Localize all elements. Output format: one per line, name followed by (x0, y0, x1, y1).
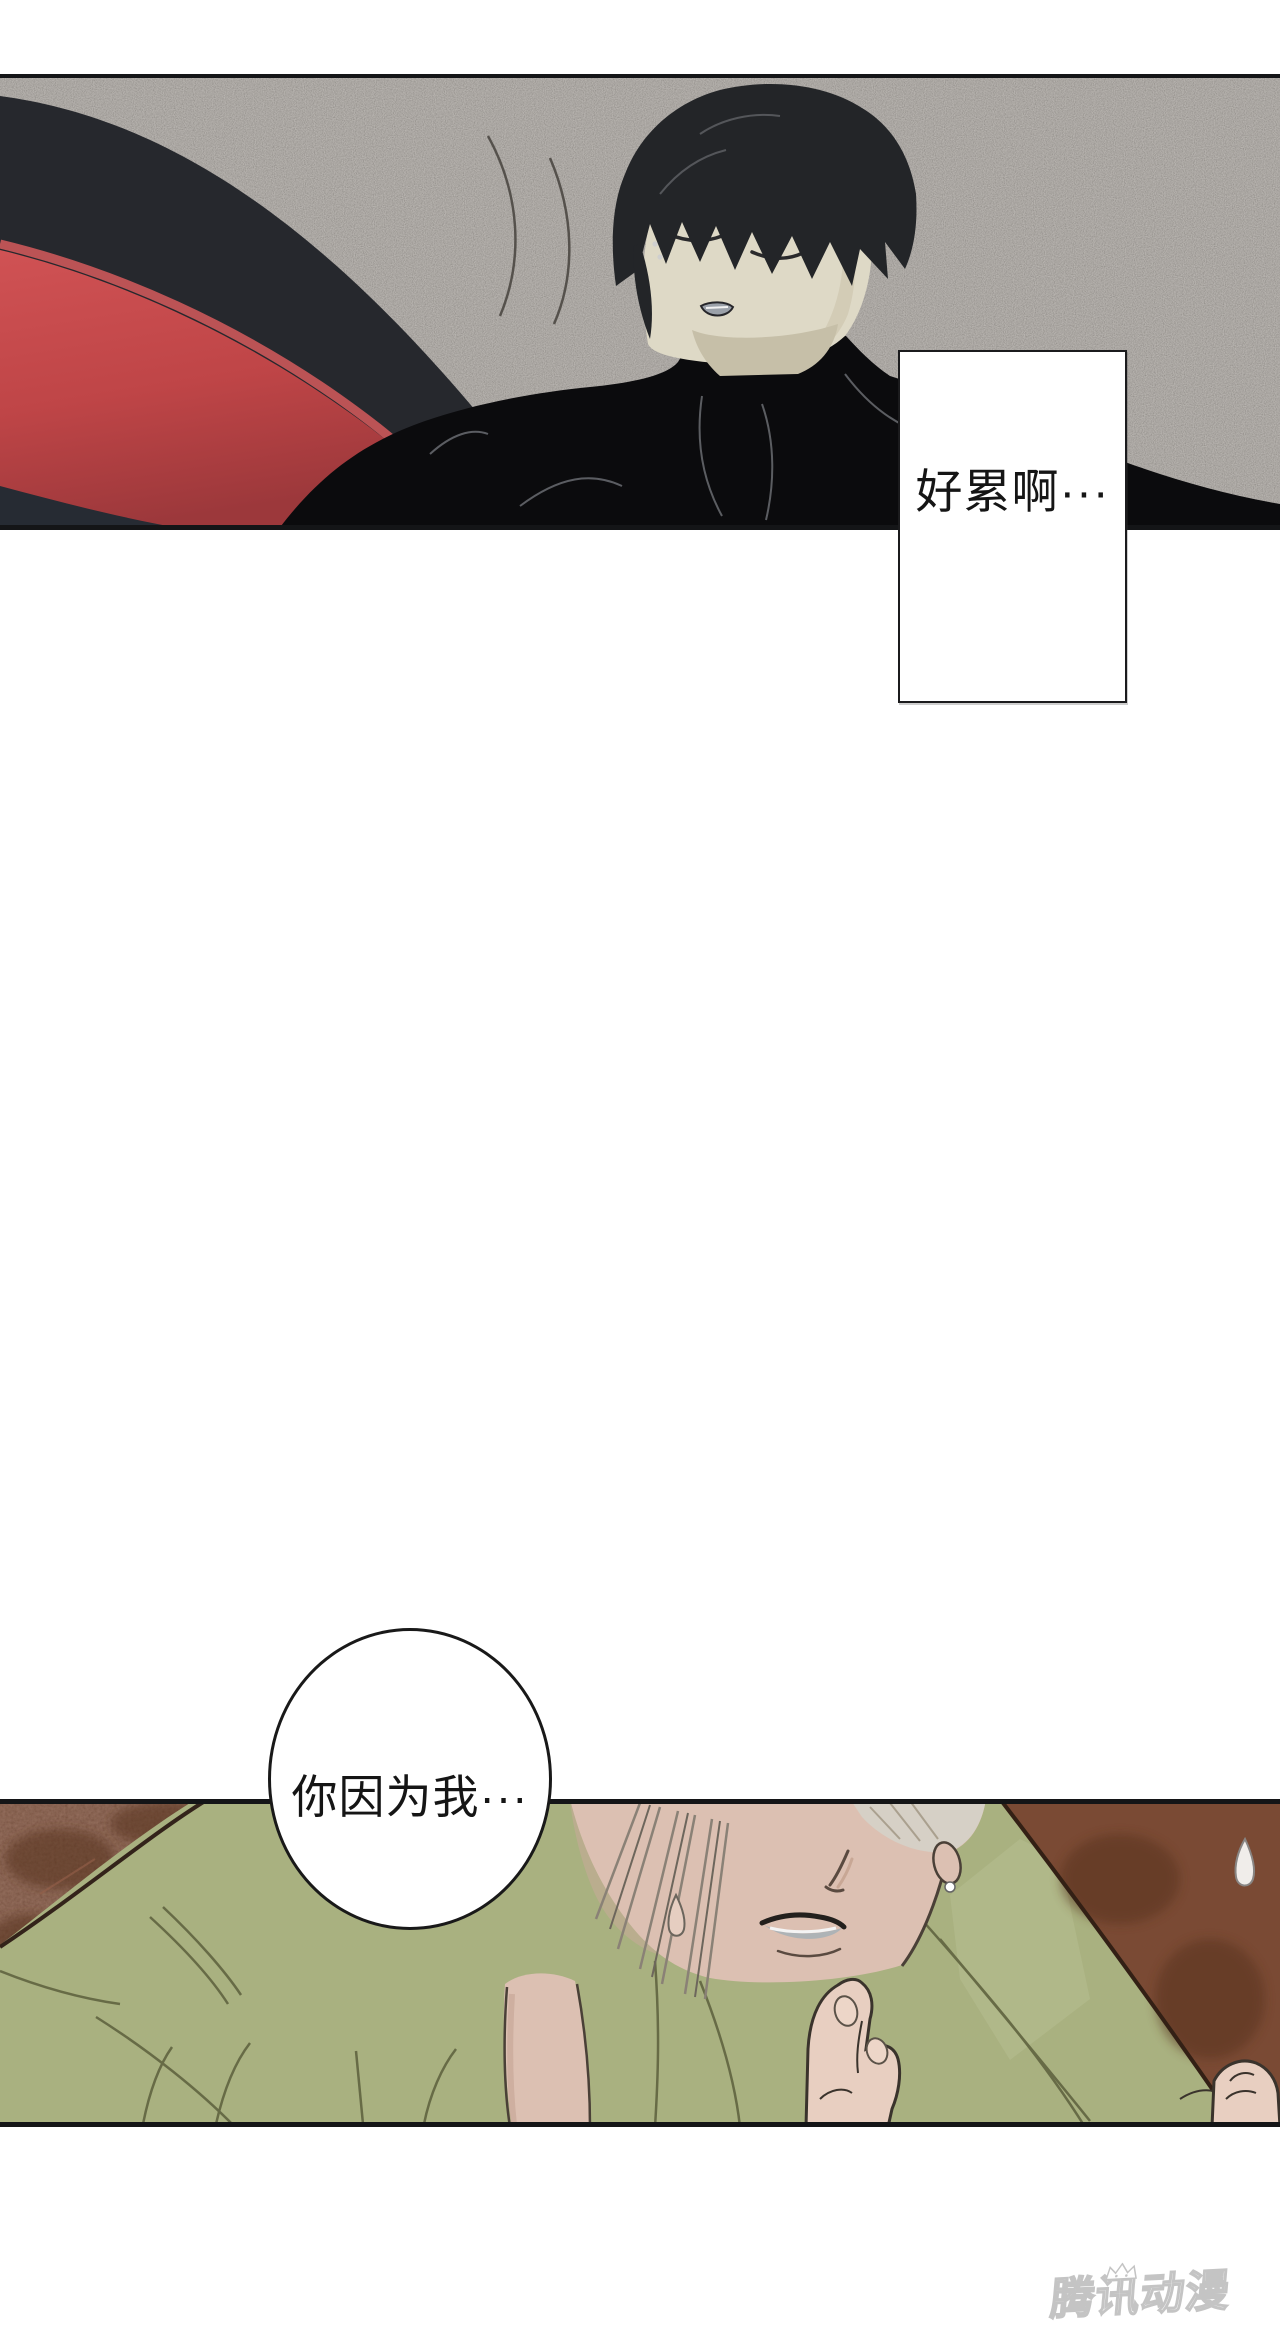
comic-page: 好累啊··· (0, 0, 1280, 2345)
speech-bubble-text: 你因为我··· (271, 1771, 549, 1823)
panel-top-border (0, 74, 1280, 78)
earring (945, 1882, 955, 1892)
comic-panel-bottom (0, 1799, 1280, 2127)
tencent-comics-watermark: 腾讯动漫 (1048, 2264, 1268, 2336)
dialog-box: 好累啊··· (898, 350, 1127, 703)
panel-top-border (0, 1799, 1280, 1804)
neck-skin (504, 1973, 590, 2127)
crown-icon (1104, 2262, 1140, 2282)
watermark-text: 腾讯动漫 (1048, 2264, 1267, 2326)
dialog-box-text: 好累啊··· (900, 466, 1125, 518)
bottom-panel-art (0, 1799, 1280, 2127)
speech-bubble: 你因为我··· (268, 1628, 552, 1930)
panel-bottom-border (0, 2122, 1280, 2127)
